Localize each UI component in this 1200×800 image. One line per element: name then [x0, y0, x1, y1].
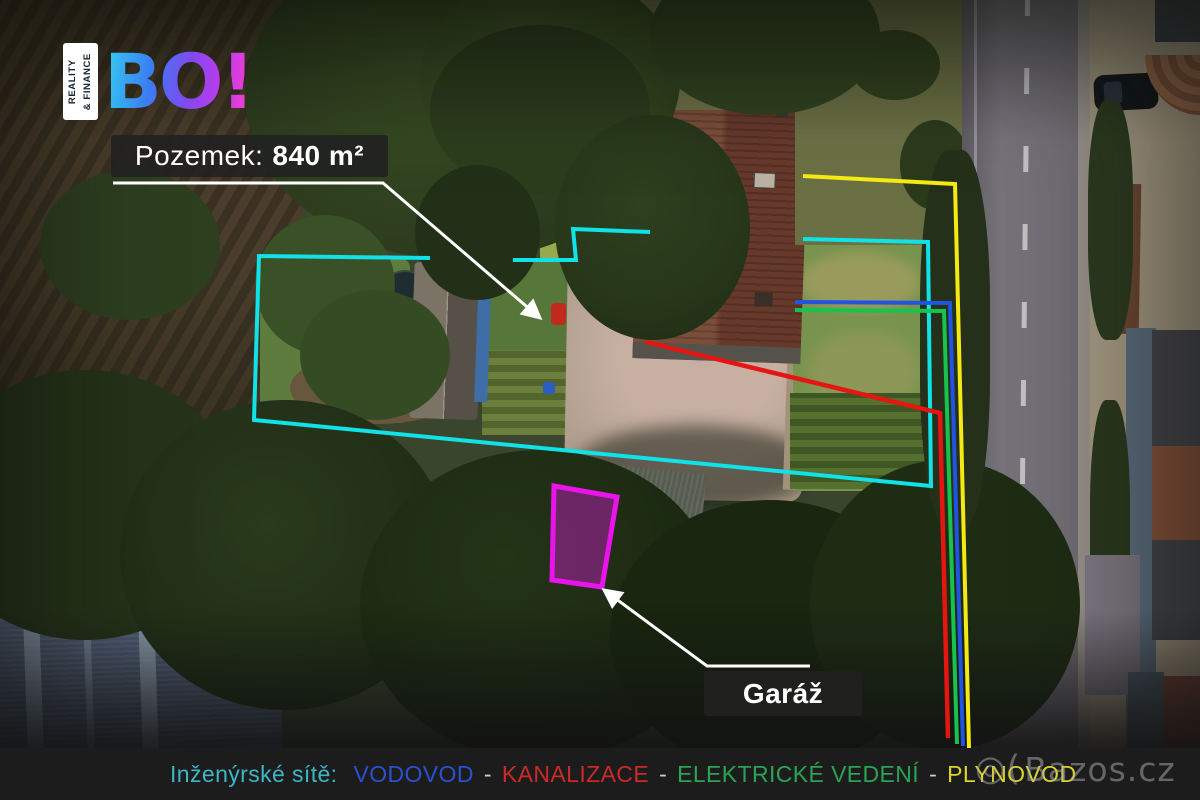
property-boundary-line: [254, 229, 931, 486]
legend-item-water: VODOVOD: [353, 761, 473, 788]
area-label-value: 840 m²: [272, 140, 364, 172]
logo-tagline: REALITY & FINANCE: [66, 53, 95, 110]
legend-separator: -: [929, 761, 937, 788]
legend-separator: -: [484, 761, 492, 788]
area-pointer-arrow: [113, 183, 540, 318]
legend-separator: -: [659, 761, 667, 788]
area-label-prefix: Pozemek:: [135, 140, 264, 172]
garage-outline: [552, 486, 617, 587]
bazos-logo-icon: ◎(: [975, 749, 1021, 789]
bazos-watermark: ◎( Bazos.cz: [975, 749, 1176, 789]
bo-logo: REALITY & FINANCE BO!: [63, 43, 252, 120]
garage-label: Garáž: [704, 671, 862, 716]
property-listing-image: REALITY & FINANCE BO! Pozemek: 840 m² Ga…: [0, 0, 1200, 800]
logo-tagline-tab: REALITY & FINANCE: [63, 43, 98, 120]
legend-item-electric: ELEKTRICKÉ VEDENÍ: [677, 761, 919, 788]
logo-brand-text: BO!: [104, 43, 252, 120]
utilities-legend: Inženýrské sítě: VODOVOD - KANALIZACE - …: [170, 748, 1076, 800]
legend-item-sewer: KANALIZACE: [502, 761, 649, 788]
garage-pointer-arrow: [604, 590, 810, 666]
legend-title: Inženýrské sítě:: [170, 761, 337, 788]
area-label: Pozemek: 840 m²: [111, 135, 388, 177]
bazos-watermark-text: Bazos.cz: [1024, 750, 1176, 789]
